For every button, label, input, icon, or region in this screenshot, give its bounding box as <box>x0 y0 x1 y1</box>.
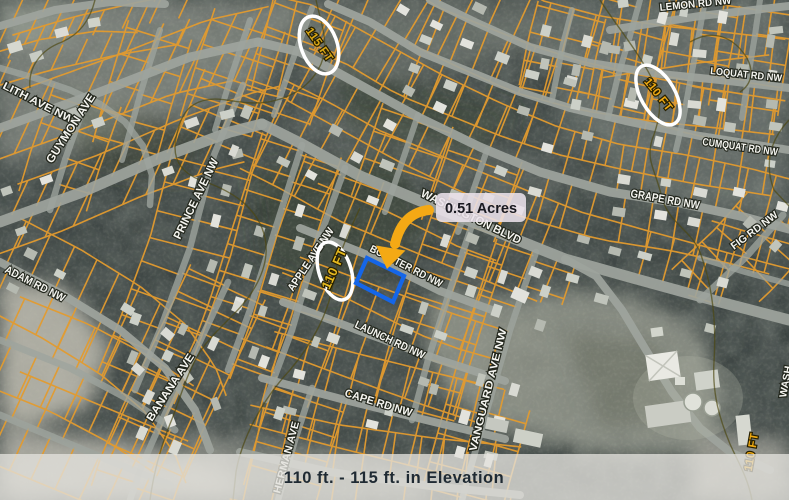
svg-text:110 ft. - 115 ft. in Elevation: 110 ft. - 115 ft. in Elevation <box>284 469 504 487</box>
svg-text:0.51 Acres: 0.51 Acres <box>445 201 517 217</box>
